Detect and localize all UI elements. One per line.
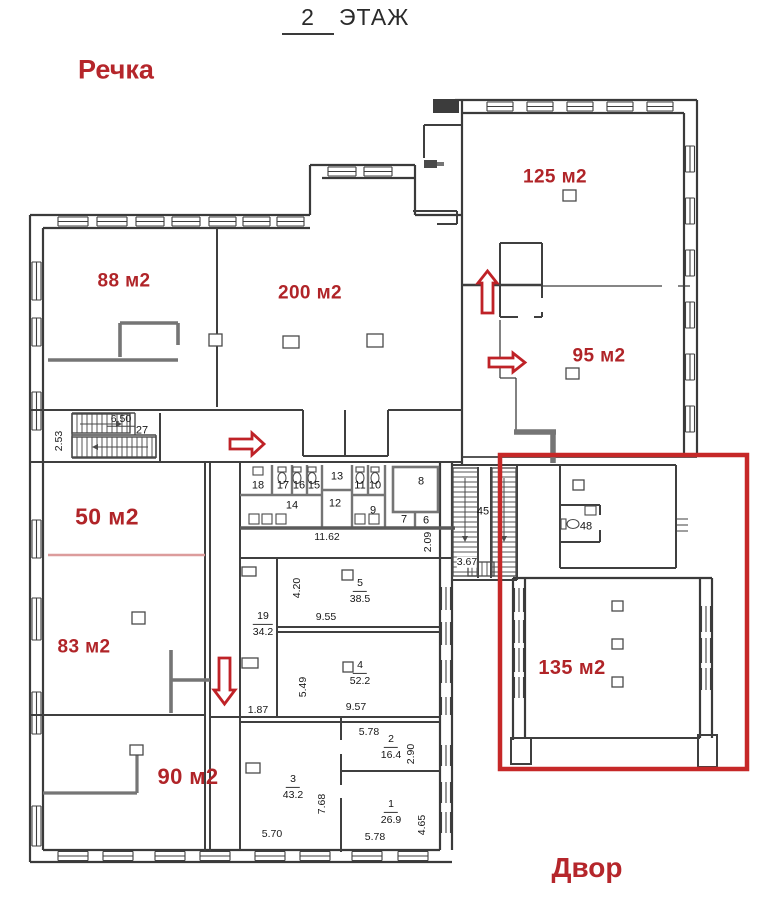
room-number-16: 16 [293, 481, 305, 492]
dim-4-65: 4.65 [417, 815, 428, 835]
area-label-88: 88 м2 [97, 272, 150, 291]
room-area-5: 5 38.5 [350, 577, 370, 605]
room-area-19: 19 34.2 [253, 610, 273, 638]
context-label-river: Речка [78, 57, 154, 84]
area-label-95: 95 м2 [572, 347, 625, 366]
room-number-45: 45 [477, 507, 489, 518]
dim-1-87: 1.87 [248, 705, 268, 716]
room-number-10: 10 [369, 481, 381, 492]
arrow-down-icon [214, 658, 235, 704]
room-area-5-value: 38.5 [350, 592, 370, 606]
floor-number: 2 [282, 4, 334, 35]
area-label-125: 125 м2 [523, 168, 587, 187]
floor-plan-page: 2ЭТАЖ Речка Двор 88 м2 200 м2 125 м2 95 … [0, 0, 775, 900]
wall-block-small [424, 160, 437, 168]
room-area-3-number: 3 [286, 773, 300, 788]
dim-5-49: 5.49 [298, 677, 309, 697]
dim-5-78-bottom: 5.78 [365, 832, 385, 843]
room-area-4-value: 52.2 [350, 674, 370, 688]
area-label-135: 135 м2 [538, 658, 605, 678]
floor-title: 2ЭТАЖ [282, 4, 409, 35]
floor-plan-drawing [0, 0, 775, 900]
dim-3-67: 3.67 [457, 557, 477, 568]
dim-2-53: 2.53 [54, 431, 65, 451]
room-area-3-value: 43.2 [283, 788, 303, 802]
dim-11-62: 11.62 [314, 532, 340, 543]
room-number-13: 13 [331, 472, 343, 483]
room-number-11: 11 [354, 481, 365, 492]
dim-7-68: 7.68 [317, 794, 328, 814]
arrow-right-icon-95 [489, 353, 525, 372]
room-number-6: 6 [423, 516, 429, 527]
dim-9-57: 9.57 [346, 702, 366, 713]
room-number-12: 12 [329, 499, 341, 510]
arrow-right-icon-corridor [230, 433, 264, 455]
room-number-27: 27 [136, 426, 148, 437]
wall-block [433, 99, 459, 113]
room-number-7: 7 [401, 515, 407, 526]
dim-9-55: 9.55 [316, 612, 336, 623]
room-area-3: 3 43.2 [283, 773, 303, 801]
room-area-19-number: 19 [253, 610, 273, 625]
dim-5-70: 5.70 [262, 829, 282, 840]
room-number-15: 15 [308, 481, 320, 492]
room-area-1: 1 26.9 [381, 798, 401, 826]
room-area-1-number: 1 [384, 798, 398, 813]
dim-2-09: 2.09 [423, 532, 434, 552]
area-label-200: 200 м2 [278, 284, 342, 303]
dim-4-20: 4.20 [292, 578, 303, 598]
room-area-2: 2 16.4 [381, 733, 401, 761]
area-label-90: 90 м2 [157, 766, 218, 788]
room-number-14: 14 [286, 501, 298, 512]
room-area-19-value: 34.2 [253, 625, 273, 639]
dim-6-50: 6.50 [107, 413, 135, 427]
room-number-17: 17 [277, 481, 289, 492]
context-label-yard: Двор [552, 854, 623, 882]
room-area-2-number: 2 [384, 733, 398, 748]
room-area-4: 4 52.2 [350, 659, 370, 687]
room-number-8: 8 [418, 477, 424, 488]
area-label-50: 50 м2 [75, 506, 139, 529]
dim-5-78-top: 5.78 [359, 727, 379, 738]
arrow-up-icon [478, 271, 497, 313]
room-area-2-value: 16.4 [381, 748, 401, 762]
dim-2-90: 2.90 [406, 744, 417, 764]
floor-word: ЭТАЖ [339, 4, 409, 30]
room-number-9: 9 [370, 506, 376, 517]
room-area-1-value: 26.9 [381, 813, 401, 827]
room-area-4-number: 4 [353, 659, 367, 674]
room-number-18: 18 [252, 481, 264, 492]
room-number-48: 48 [580, 522, 592, 533]
area-label-83: 83 м2 [57, 638, 110, 657]
room-area-5-number: 5 [353, 577, 367, 592]
